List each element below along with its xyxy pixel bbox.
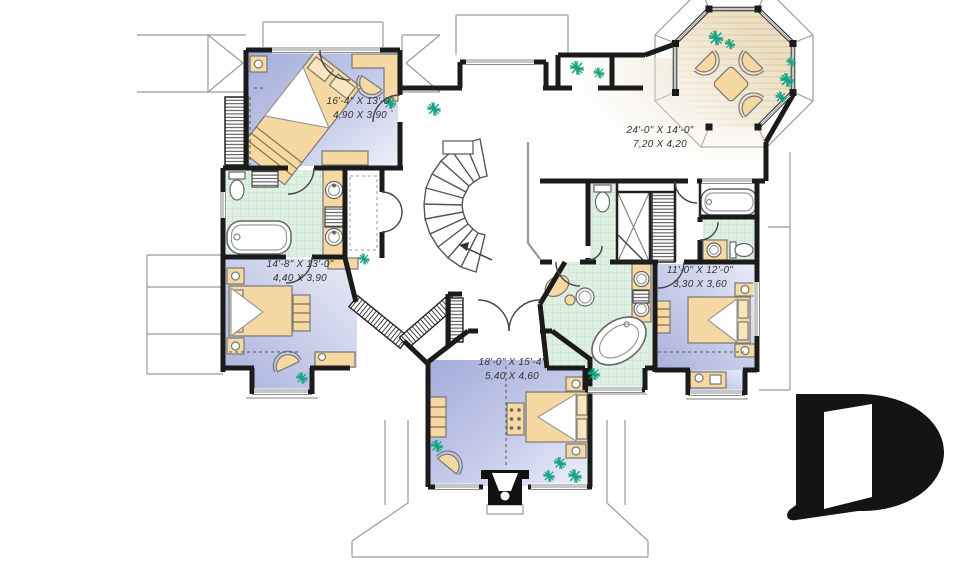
room-dims-metric: 4,90 X 3,90 <box>298 109 422 123</box>
floor-plan-drawing <box>0 0 960 569</box>
nightstand-icon <box>250 56 267 72</box>
plant-icon <box>427 102 440 115</box>
dresser-icon-master <box>430 397 446 437</box>
plant-icon <box>725 39 735 49</box>
roof-dormer-center <box>263 22 383 47</box>
plant-icon <box>568 469 581 482</box>
bed-icon-right <box>688 297 750 343</box>
room-label-bonus-room: 24'-0" X 14'-0" 7,20 X 4,20 <box>598 124 722 151</box>
plant-icon <box>543 470 554 481</box>
roof-dormer-hall <box>456 15 568 55</box>
bed-icon-master <box>526 392 588 442</box>
window <box>254 389 308 396</box>
door-arc <box>382 192 402 212</box>
window <box>702 178 752 185</box>
plant-icon <box>776 92 787 103</box>
plant-icon <box>786 57 796 67</box>
toilet-icon-small-bath <box>730 242 753 258</box>
stool-icon <box>565 295 575 305</box>
plant-icon <box>709 31 723 45</box>
round-sink-icon <box>576 288 594 306</box>
room-label-bedroom-left: 14'-8" X 13'-0" 4,40 X 3,90 <box>238 258 362 285</box>
stair-landing <box>443 141 473 154</box>
room-dims-metric: 7,20 X 4,20 <box>598 138 722 152</box>
window <box>588 387 642 394</box>
room-dims-metric: 3,30 X 3,60 <box>638 278 762 292</box>
door-arc <box>509 300 540 331</box>
plant-icon <box>588 368 600 380</box>
plant-icon <box>594 68 605 79</box>
curved-staircase <box>424 139 492 272</box>
plant-icon <box>780 73 794 87</box>
door-arc <box>478 300 509 331</box>
desk-icon-left <box>315 352 355 367</box>
window <box>690 390 742 397</box>
roof-dormer-right <box>402 35 440 92</box>
window <box>220 192 227 218</box>
plant-icon <box>296 372 307 383</box>
window <box>272 47 380 54</box>
room-dims-imperial: 11'-0" X 12'-0" <box>638 264 762 278</box>
room-label-bedroom-right: 11'-0" X 12'-0" 3,30 X 3,60 <box>638 264 762 291</box>
window <box>435 484 479 491</box>
room-dims-imperial: 24'-0" X 14'-0" <box>598 124 722 138</box>
dresser-icon-left <box>293 295 310 331</box>
room-dims-imperial: 18'-0" X 15'-4" <box>450 356 574 370</box>
sink-icon-small-bath <box>707 243 721 257</box>
roof-dormer-left <box>137 35 246 92</box>
room-dims-imperial: 16'-4" X 13'-0" <box>298 95 422 109</box>
roof-right-edge <box>759 152 790 390</box>
window <box>531 484 587 491</box>
door-arc <box>675 181 697 203</box>
room-dims-metric: 5,40 X 4,60 <box>450 370 574 384</box>
window <box>466 59 534 66</box>
bed-icon-left <box>229 286 292 336</box>
nightstand-icon-master-2 <box>566 444 586 458</box>
plant-icon <box>431 440 443 452</box>
hall-rail-line <box>528 142 540 259</box>
room-dims-imperial: 14'-8" X 13'-0" <box>238 258 362 272</box>
dresser-icon-right <box>656 301 670 333</box>
dresser-icon-top <box>322 151 368 165</box>
closet-rack-icon-suite <box>652 192 675 262</box>
linen-shelf-icon-2 <box>325 207 343 227</box>
fireplace-icon <box>481 470 529 514</box>
room-dims-metric: 4,40 X 3,90 <box>238 272 362 286</box>
toilet-icon-left-bath <box>229 172 245 200</box>
linen-shelf-icon-3 <box>633 290 649 303</box>
drummond-logo <box>787 394 944 520</box>
shower-door-icon <box>618 235 644 261</box>
door-arc <box>382 212 402 232</box>
nightstand-icon-right-2 <box>735 344 755 357</box>
floor-walkin-closet-left <box>347 170 381 256</box>
linen-shelf-icon <box>252 171 278 187</box>
toilet-icon-suite <box>594 185 611 212</box>
bench-icon-master <box>507 403 524 435</box>
bathtub-icon-left <box>227 221 291 254</box>
closet-rack-icon-center-1 <box>349 296 409 348</box>
bathtub-icon-suite <box>701 189 757 215</box>
room-label-bedroom-top-left: 16'-4" X 13'-0" 4,90 X 3,90 <box>298 95 422 122</box>
floor-plan: 16'-4" X 13'-0" 4,90 X 3,90 24'-0" X 14'… <box>0 0 960 569</box>
roof-left-bands <box>147 255 223 374</box>
room-label-master-bedroom: 18'-0" X 15'-4" 5,40 X 4,60 <box>450 356 574 383</box>
plant-icon <box>554 457 566 469</box>
plant-icon <box>570 61 584 75</box>
desk-icon-right <box>690 372 726 388</box>
